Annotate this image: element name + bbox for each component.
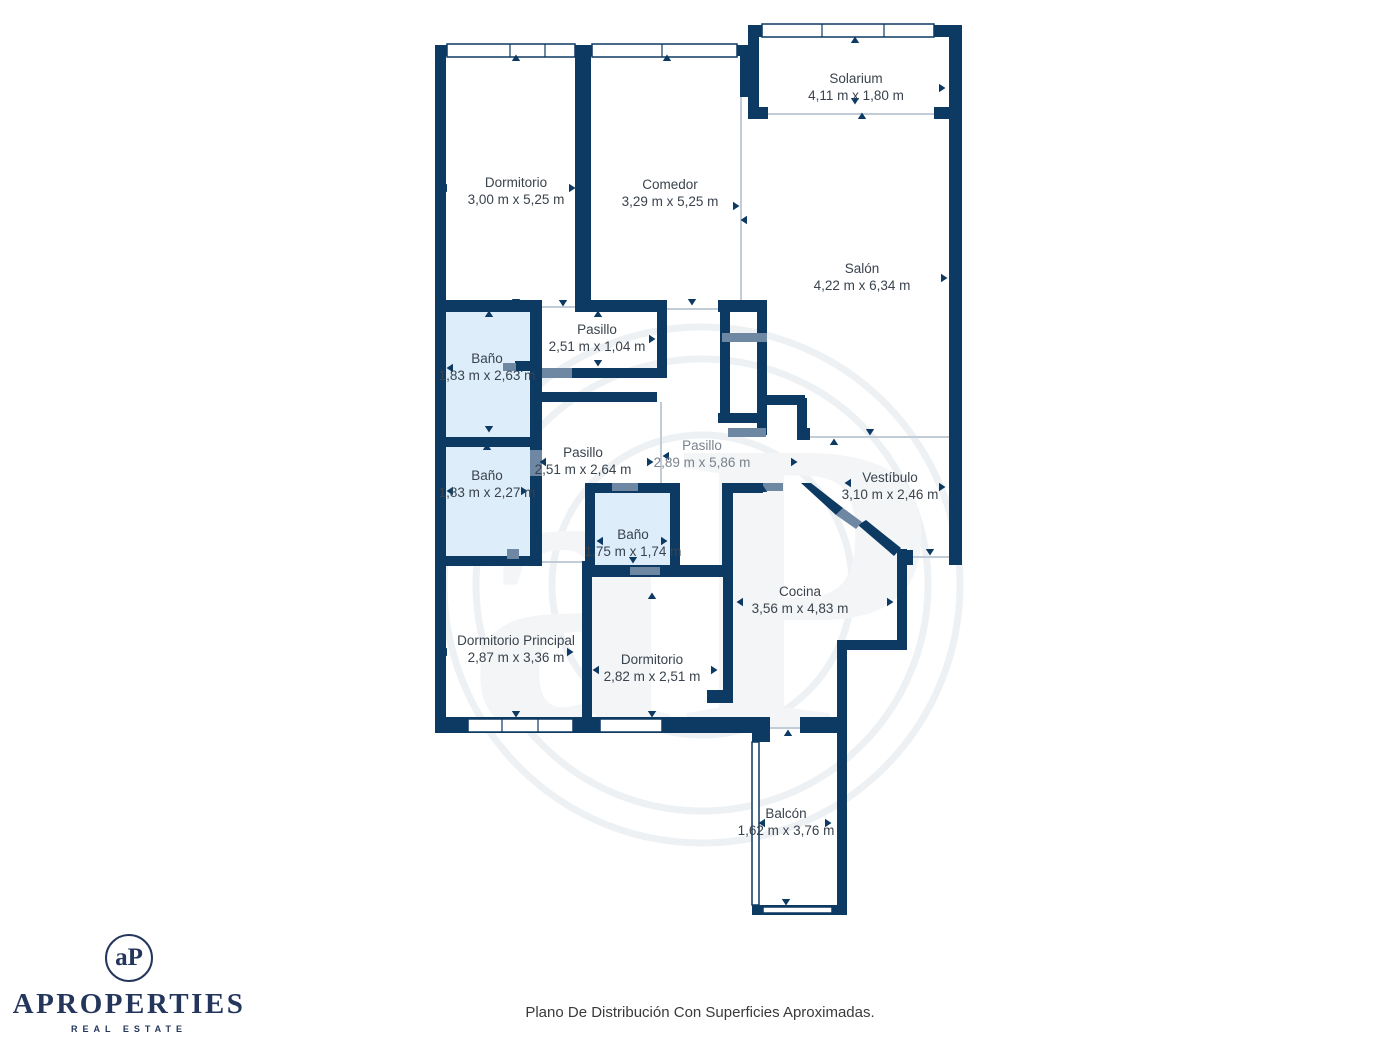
room-name: Solarium (746, 71, 966, 88)
room-name: Dormitorio Principal (386, 633, 646, 650)
room-label-comedor: Comedor 3,29 m x 5,25 m (560, 177, 780, 210)
room-name: Cocina (690, 584, 910, 601)
room-name: Pasillo (487, 322, 707, 339)
plan-caption: Plano De Distribución Con Superficies Ap… (0, 1004, 1400, 1021)
room-name: Dormitorio (542, 652, 762, 669)
room-name: Balcón (676, 806, 896, 823)
room-label-bano-1: Baño 1,83 m x 2,63 m (377, 351, 597, 384)
room-dims: 1,83 m x 2,27 m (377, 485, 597, 502)
room-dims: 4,22 m x 6,34 m (752, 278, 972, 295)
room-name: Salón (752, 261, 972, 278)
room-label-balcon: Balcón 1,62 m x 3,76 m (676, 806, 896, 839)
room-label-cocina: Cocina 3,56 m x 4,83 m (690, 584, 910, 617)
room-name: Comedor (560, 177, 780, 194)
room-dims: 4,11 m x 1,80 m (746, 88, 966, 105)
room-dims: 1,75 m x 1,74 m (523, 544, 743, 561)
room-dims: 2,82 m x 2,51 m (542, 669, 762, 686)
floorplan-page: aP (0, 0, 1400, 1050)
room-name: Baño (377, 351, 597, 368)
room-label-salon: Salón 4,22 m x 6,34 m (752, 261, 972, 294)
room-label-vestibulo: Vestíbulo 3,10 m x 2,46 m (780, 470, 1000, 503)
room-label-bano-3: Baño 1,75 m x 1,74 m (523, 527, 743, 560)
room-dims: 3,29 m x 5,25 m (560, 194, 780, 211)
room-dims: 1,83 m x 2,63 m (377, 368, 597, 385)
room-dims: 3,56 m x 4,83 m (690, 601, 910, 618)
floorplan-drawing: aP (0, 0, 1400, 1050)
room-label-solarium: Solarium 4,11 m x 1,80 m (746, 71, 966, 104)
room-dims: 2,89 m x 5,86 m (592, 455, 812, 472)
room-name: Pasillo (592, 438, 812, 455)
room-label-pasillo-3: Pasillo 2,89 m x 5,86 m (592, 438, 812, 471)
room-label-dormitorio-bottom: Dormitorio 2,82 m x 2,51 m (542, 652, 762, 685)
logo-tagline: REAL ESTATE (0, 1024, 258, 1034)
logo-monogram-circle: aP (105, 934, 153, 982)
room-dims: 1,62 m x 3,76 m (676, 823, 896, 840)
room-name: Vestíbulo (780, 470, 1000, 487)
logo-monogram-text: aP (115, 944, 143, 972)
room-dims: 3,10 m x 2,46 m (780, 487, 1000, 504)
room-name: Baño (523, 527, 743, 544)
